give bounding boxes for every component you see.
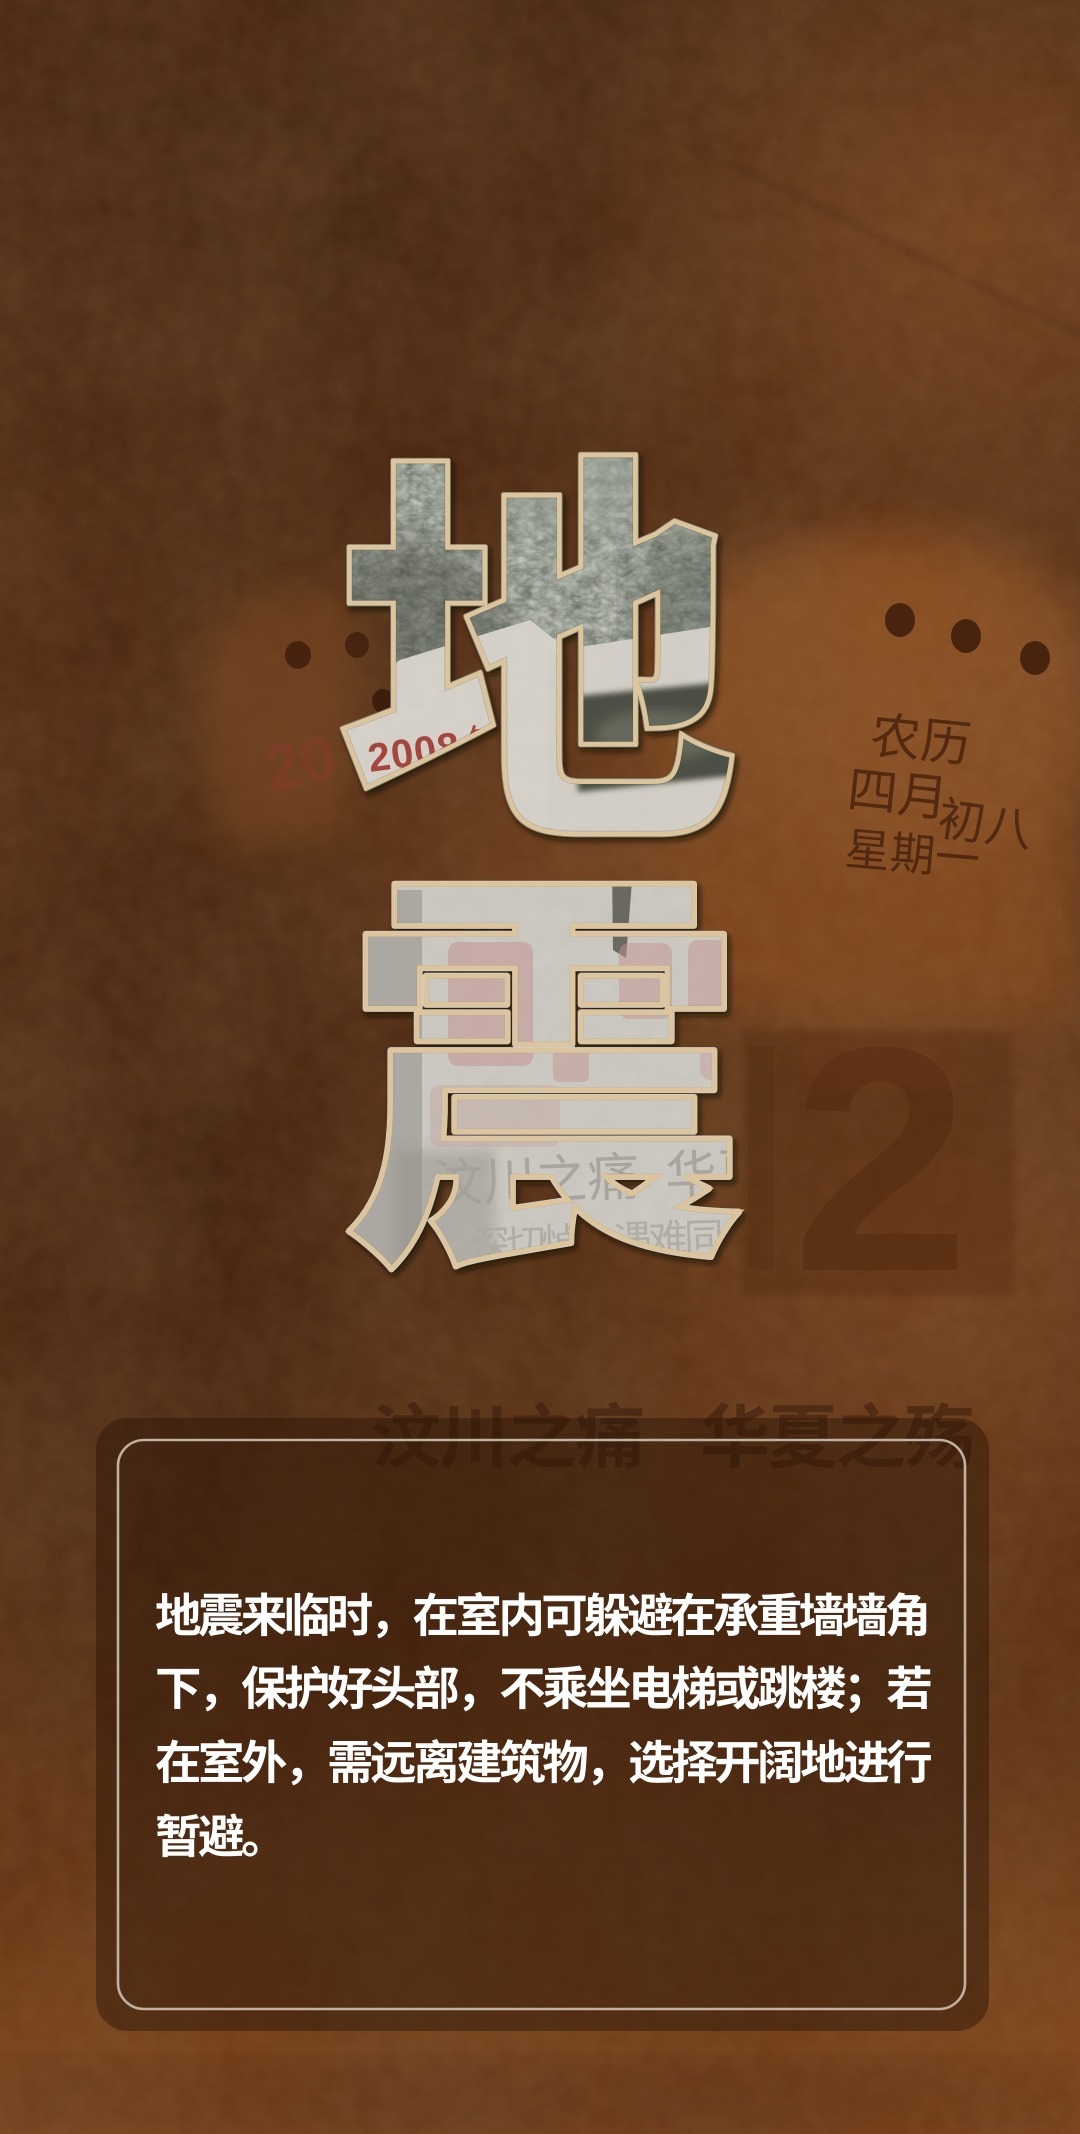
- svg-text:2: 2: [792, 980, 970, 1338]
- svg-text:20: 20: [258, 720, 343, 805]
